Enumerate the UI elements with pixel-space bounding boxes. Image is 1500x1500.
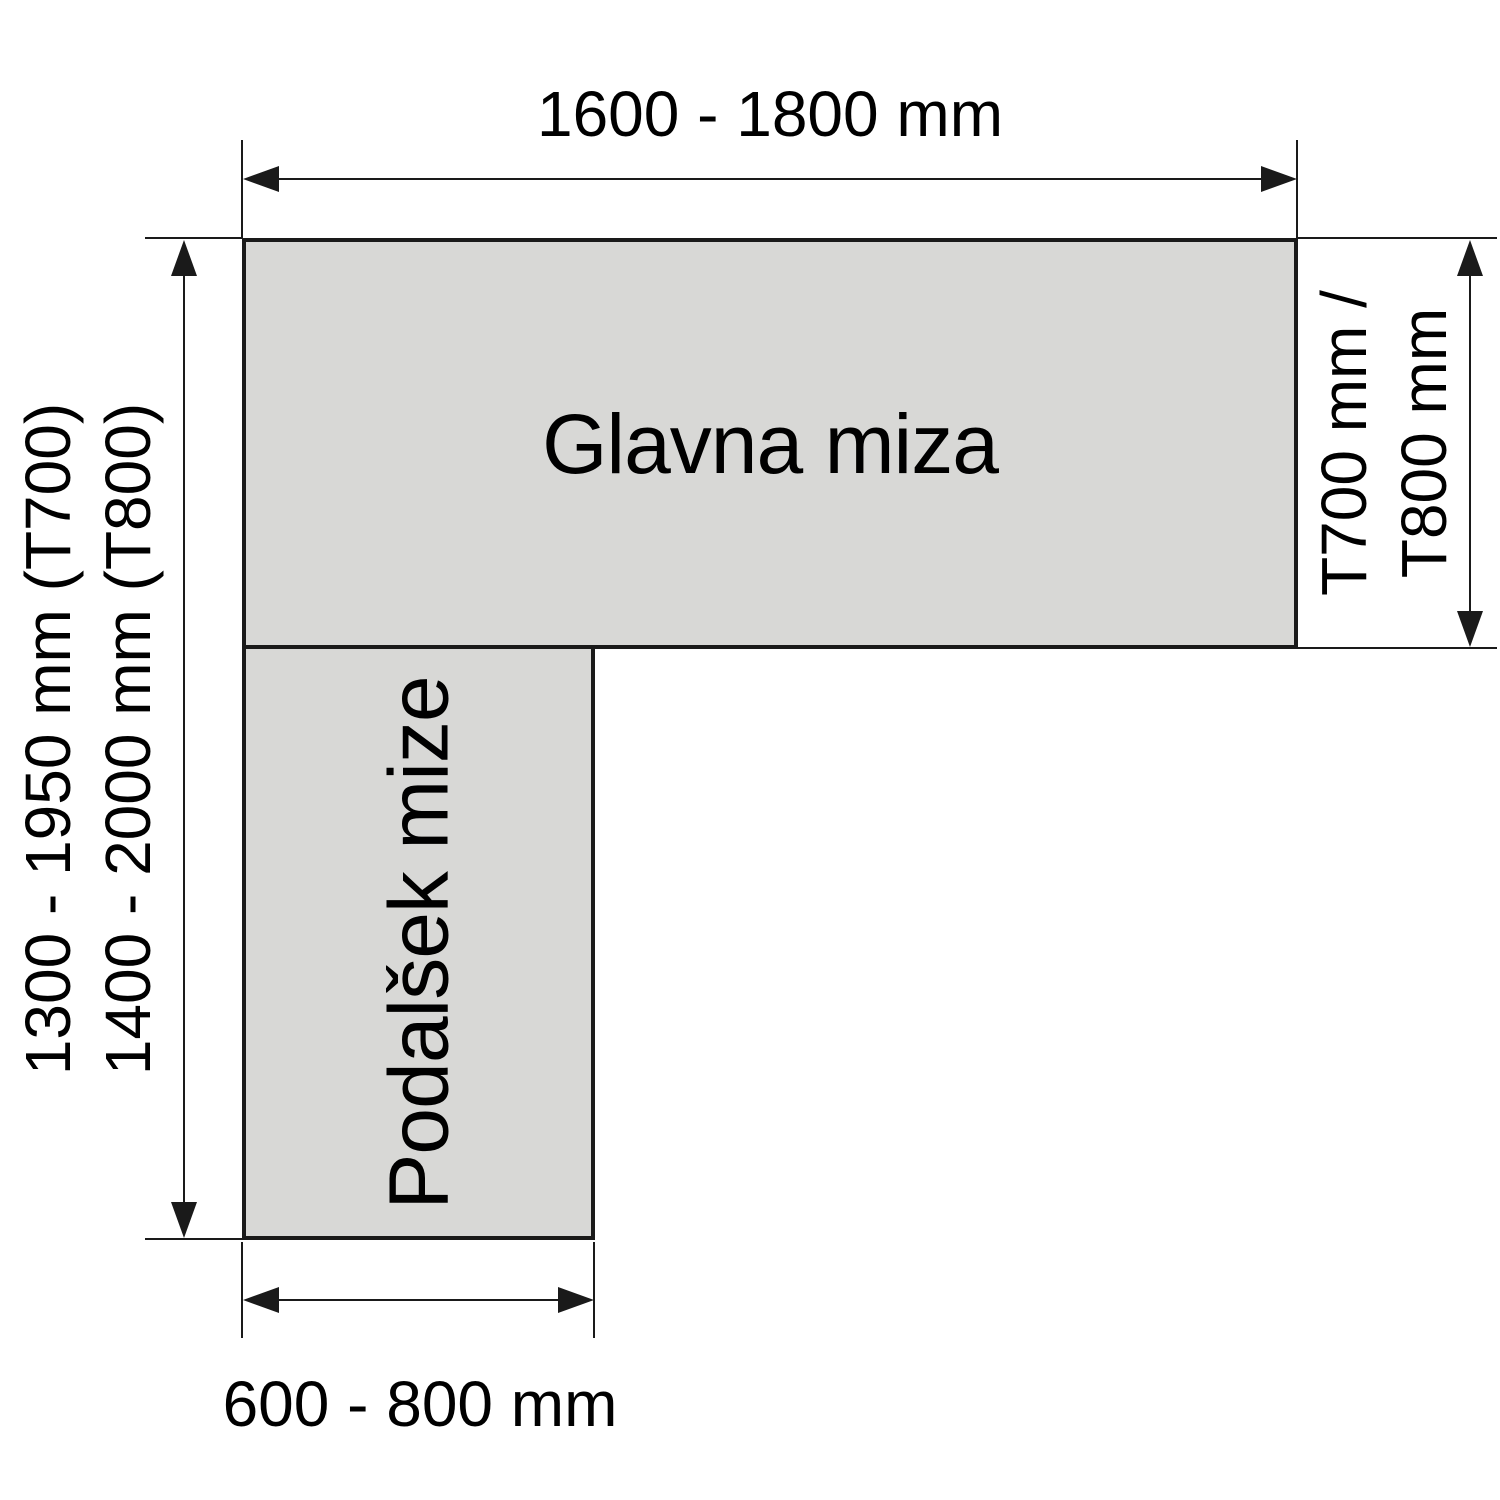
diagram-canvas: Glavna miza Podalšek mize 1600 - 1800 mm… (0, 0, 1500, 1500)
main-table-shape: Glavna miza (242, 238, 1298, 649)
dimension-line (183, 276, 185, 1202)
top-dimension-label: 1600 - 1800 mm (242, 82, 1298, 146)
bottom-dimension-arrow (243, 1287, 594, 1313)
dimension-line (279, 178, 1261, 180)
dimension-line (279, 1299, 558, 1301)
left-dimension-arrow (171, 240, 197, 1238)
arrowhead-left-icon (243, 1287, 279, 1313)
bottom-dimension-label: 600 - 800 mm (170, 1372, 670, 1436)
arrowhead-up-icon (171, 240, 197, 276)
extension-line (145, 237, 242, 239)
left-dimension-label: 1300 - 1950 mm (T700) 1400 - 2000 mm (T8… (8, 289, 168, 1189)
extension-table-label: Podalšek mize (377, 676, 461, 1209)
arrowhead-left-icon (243, 166, 279, 192)
arrowhead-right-icon (558, 1287, 594, 1313)
right-dimension-label: T700 mm / T800 mm (1304, 213, 1464, 673)
arrowhead-down-icon (171, 1202, 197, 1238)
top-dimension-arrow (243, 166, 1297, 192)
right-dimension-label-line2: T800 mm (1384, 213, 1464, 673)
extension-line (145, 1238, 242, 1240)
arrowhead-right-icon (1261, 166, 1297, 192)
left-dimension-label-line1: 1300 - 1950 mm (T700) (8, 289, 88, 1189)
right-dimension-label-line1: T700 mm / (1304, 213, 1384, 673)
left-dimension-label-line2: 1400 - 2000 mm (T800) (88, 289, 168, 1189)
extension-table-shape: Podalšek mize (242, 645, 595, 1240)
dimension-line (1469, 276, 1471, 611)
main-table-label: Glavna miza (542, 402, 998, 486)
